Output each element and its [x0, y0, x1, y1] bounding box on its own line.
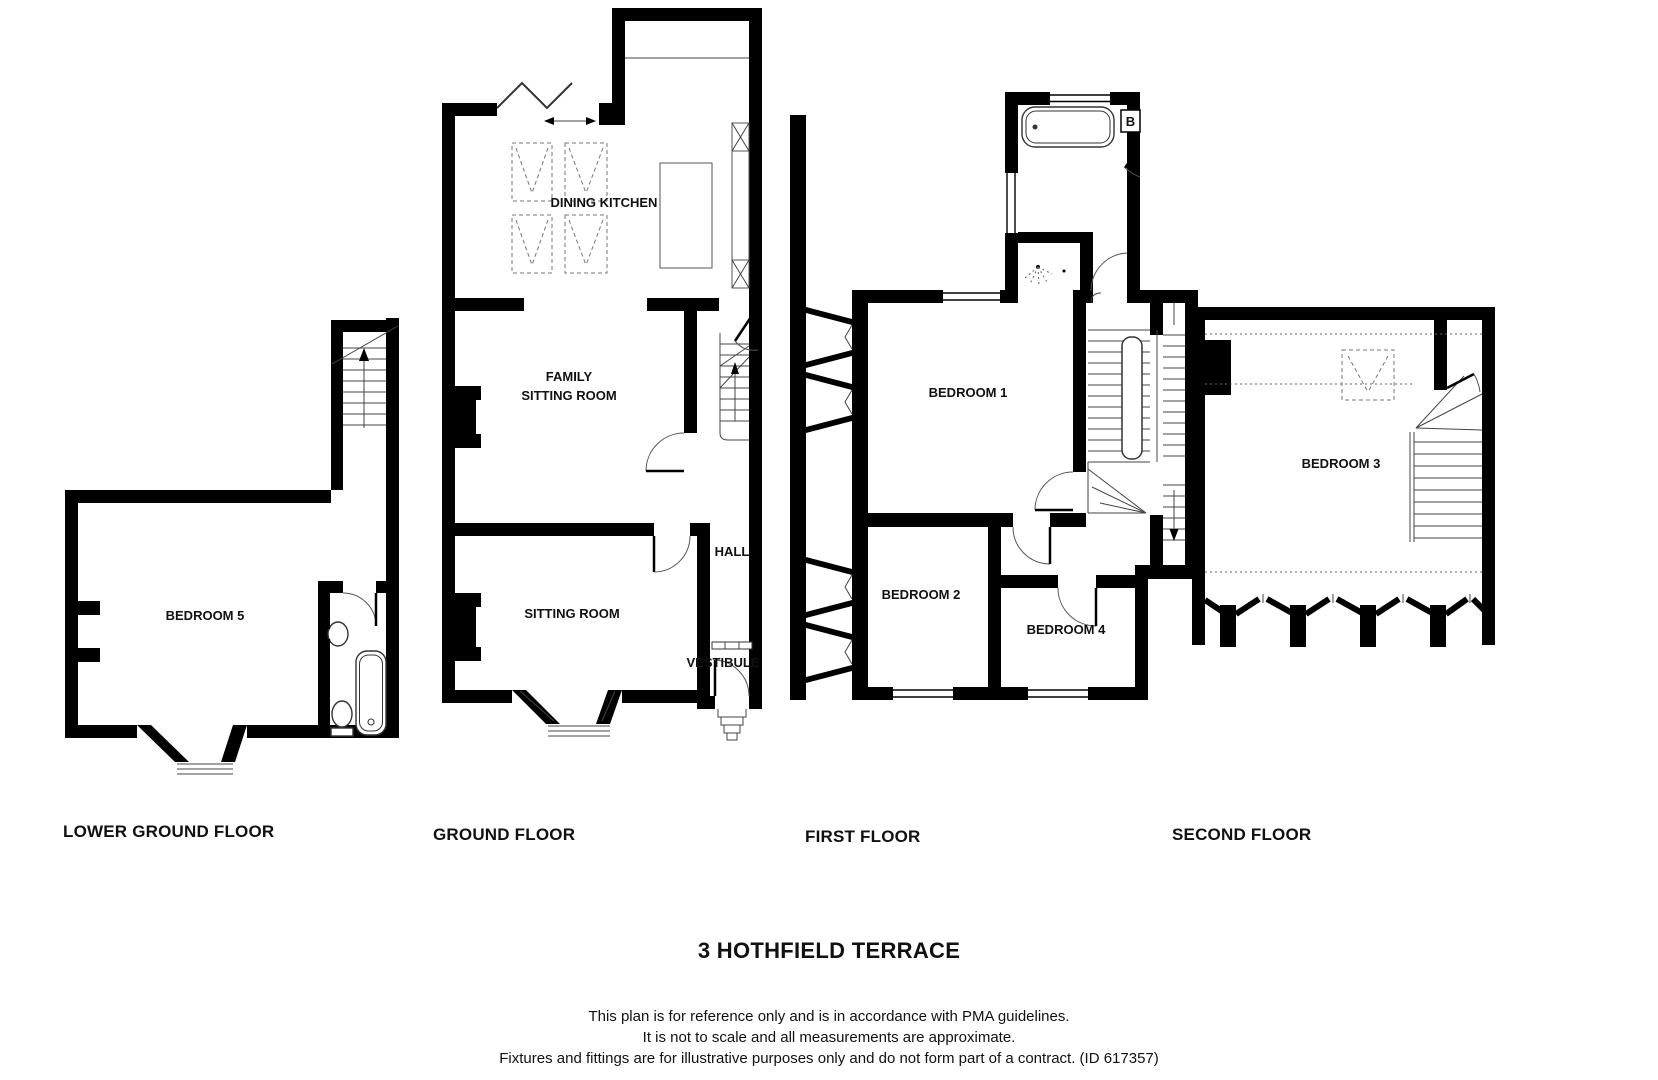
kitchen-counter [732, 123, 749, 288]
room-label-hall: HALL [715, 544, 750, 559]
disclaimer-line-2: It is not to scale and all measurements … [0, 1027, 1658, 1048]
room-label-bedroom2: BEDROOM 2 [882, 587, 961, 602]
window-top [1050, 92, 1110, 105]
skylight [1342, 350, 1394, 400]
sf-dormer-eaves [1192, 594, 1495, 647]
up-arrow-icon [731, 362, 739, 421]
floor-label-first: FIRST FLOOR [805, 827, 921, 847]
floorplan-first: B [788, 85, 1198, 725]
floor-label-second: SECOND FLOOR [1172, 825, 1311, 845]
room-label-bedroom4: BEDROOM 4 [1027, 622, 1107, 637]
room-label-bedroom3: BEDROOM 3 [1302, 456, 1381, 471]
floor-label-lower-ground: LOWER GROUND FLOOR [63, 822, 274, 842]
boiler-label: B [1126, 114, 1135, 129]
kitchen-island [660, 163, 712, 268]
bedroom2-door [1013, 527, 1050, 564]
room-label-dining-kitchen: DINING KITCHEN [551, 195, 658, 210]
lgf-bathroom-door [343, 593, 376, 626]
bedroom1-door [1035, 472, 1073, 510]
splayed-bay-windows [806, 307, 852, 683]
room-label-bedroom1: BEDROOM 1 [929, 385, 1008, 400]
sf-stairs [1410, 376, 1482, 542]
landing-door-arc [1091, 253, 1127, 291]
room-label-sitting-room: SITTING ROOM [524, 606, 619, 621]
gf-bay-window [512, 690, 622, 736]
floor-label-ground: GROUND FLOOR [433, 825, 575, 845]
floorplan-canvas: BEDROOM 5 [0, 0, 1658, 1080]
stair-handrail [1122, 337, 1142, 459]
bath-icon [356, 651, 386, 735]
vestibule-screen [712, 642, 752, 649]
bath-icon [1022, 107, 1114, 147]
sitting-room-door [654, 536, 690, 572]
floorplan-ground: DINING KITCHEN FAMILY SITTING ROOM SITTI… [432, 8, 787, 763]
entrance-steps [718, 709, 746, 740]
bifold-door-icon [497, 83, 596, 125]
room-label-family-sitting-room-line1: FAMILY [546, 369, 593, 384]
floorplan-second: BEDROOM 3 [1172, 302, 1512, 702]
family-room-door [646, 433, 684, 471]
shower-icon [1024, 265, 1066, 286]
room-label-bedroom5: BEDROOM 5 [166, 608, 245, 623]
lgf-bay-window [137, 725, 247, 774]
toilet-icon [331, 701, 353, 736]
room-label-vestibule: VESTIBULE [687, 655, 760, 670]
gf-walls [442, 8, 762, 709]
room-label-family-sitting-room-line2: SITTING ROOM [521, 388, 616, 403]
page-title: 3 HOTHFIELD TERRACE [0, 938, 1658, 964]
disclaimer-line-3: Fixtures and fittings are for illustrati… [0, 1048, 1658, 1069]
boiler-box: B [1121, 110, 1140, 132]
disclaimer: This plan is for reference only and is i… [0, 1006, 1658, 1069]
up-arrow-icon [359, 348, 369, 428]
ff-stairs [1088, 330, 1157, 513]
disclaimer-line-1: This plan is for reference only and is i… [0, 1006, 1658, 1027]
bedroom4-door [1058, 588, 1096, 626]
sink-icon [328, 622, 348, 646]
floorplan-lower-ground: BEDROOM 5 [55, 318, 405, 796]
